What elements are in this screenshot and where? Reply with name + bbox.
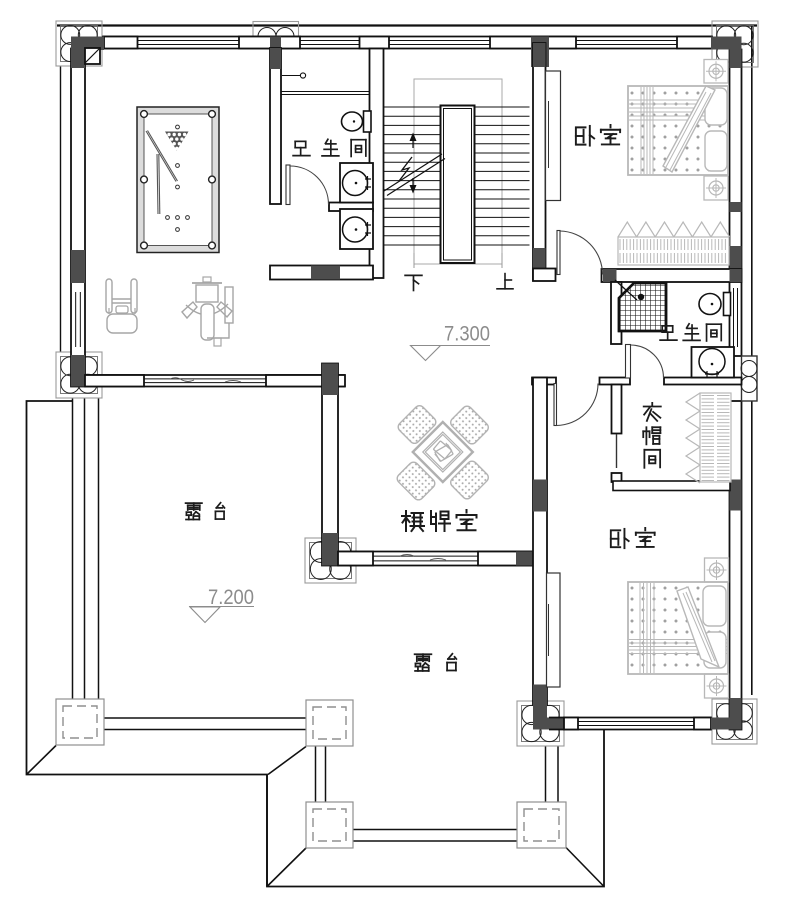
svg-text:7.300: 7.300 — [444, 323, 490, 346]
svg-text:7.200: 7.200 — [208, 586, 254, 609]
